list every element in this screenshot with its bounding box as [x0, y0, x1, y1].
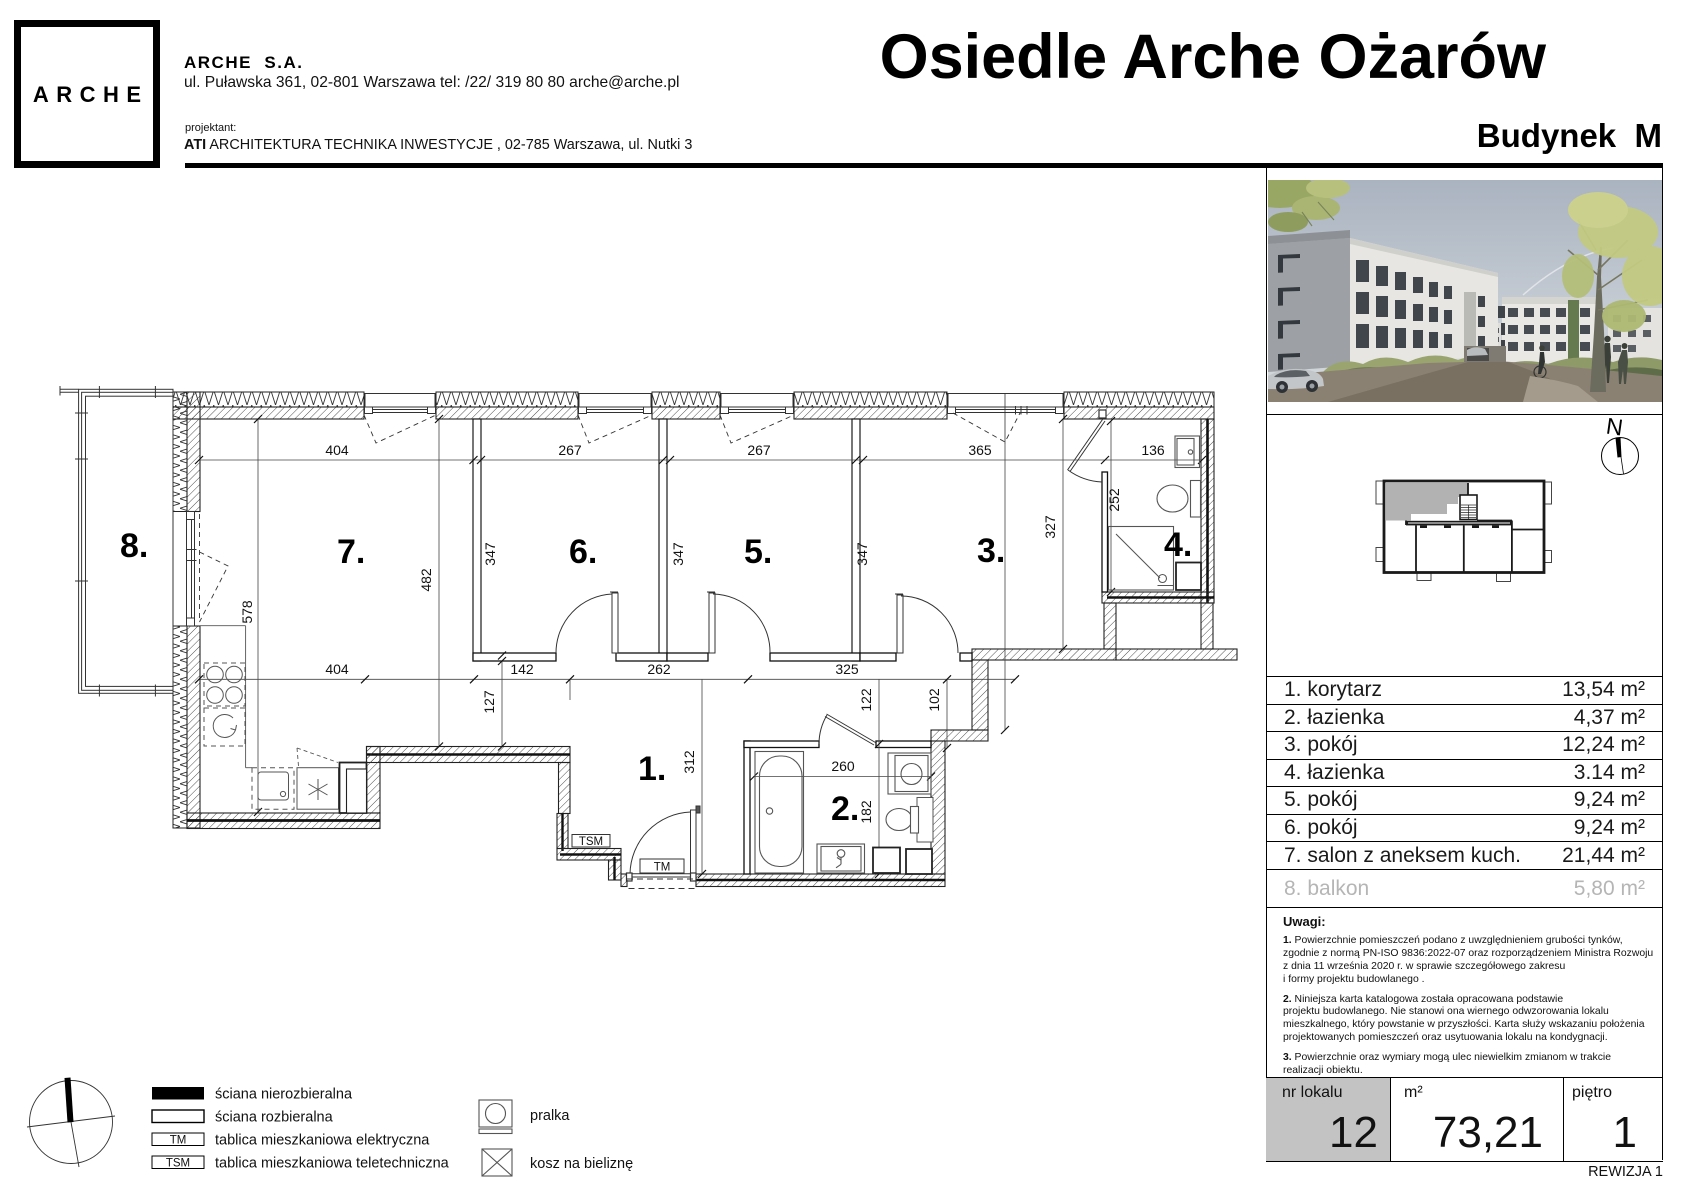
- svg-text:267: 267: [558, 442, 582, 458]
- svg-text:tablica mieszkaniowa elektrycz: tablica mieszkaniowa elektryczna: [215, 1133, 430, 1149]
- svg-text:578: 578: [239, 600, 255, 624]
- svg-text:ściana rozbieralna: ściana rozbieralna: [215, 1110, 334, 1126]
- svg-text:182: 182: [858, 800, 874, 824]
- svg-text:347: 347: [854, 542, 870, 566]
- svg-text:2.: 2.: [831, 790, 859, 828]
- svg-text:127: 127: [481, 690, 497, 714]
- svg-text:365: 365: [968, 442, 992, 458]
- svg-text:122: 122: [858, 688, 874, 712]
- svg-text:7.: 7.: [337, 533, 365, 571]
- svg-text:8.: 8.: [120, 527, 148, 565]
- svg-text:TM: TM: [170, 1135, 187, 1147]
- svg-text:TSM: TSM: [166, 1158, 190, 1170]
- svg-text:347: 347: [482, 542, 498, 566]
- svg-text:TSM: TSM: [579, 836, 603, 848]
- svg-text:tablica mieszkaniowa teletechn: tablica mieszkaniowa teletechniczna: [215, 1156, 450, 1172]
- svg-text:404: 404: [325, 442, 349, 458]
- svg-text:404: 404: [325, 661, 349, 677]
- svg-text:262: 262: [647, 661, 671, 677]
- svg-text:ściana nierozbieralna: ściana nierozbieralna: [215, 1087, 353, 1103]
- svg-text:kosz na bieliznę: kosz na bieliznę: [530, 1156, 633, 1172]
- svg-text:pralka: pralka: [530, 1108, 570, 1124]
- svg-text:482: 482: [418, 568, 434, 592]
- svg-text:4.: 4.: [1164, 526, 1192, 564]
- svg-text:6.: 6.: [569, 533, 597, 571]
- svg-text:1.: 1.: [638, 750, 666, 788]
- svg-text:312: 312: [681, 750, 697, 774]
- svg-text:5.: 5.: [744, 533, 772, 571]
- svg-text:142: 142: [510, 661, 534, 677]
- svg-text:260: 260: [831, 758, 855, 774]
- svg-text:267: 267: [747, 442, 771, 458]
- svg-text:3.: 3.: [977, 532, 1005, 570]
- svg-text:102: 102: [926, 688, 942, 712]
- svg-text:327: 327: [1042, 515, 1058, 539]
- svg-text:252: 252: [1106, 488, 1122, 512]
- svg-text:325: 325: [835, 661, 859, 677]
- svg-text:347: 347: [670, 542, 686, 566]
- svg-text:N: N: [1605, 413, 1625, 441]
- svg-text:136: 136: [1141, 442, 1165, 458]
- svg-text:TM: TM: [654, 862, 671, 874]
